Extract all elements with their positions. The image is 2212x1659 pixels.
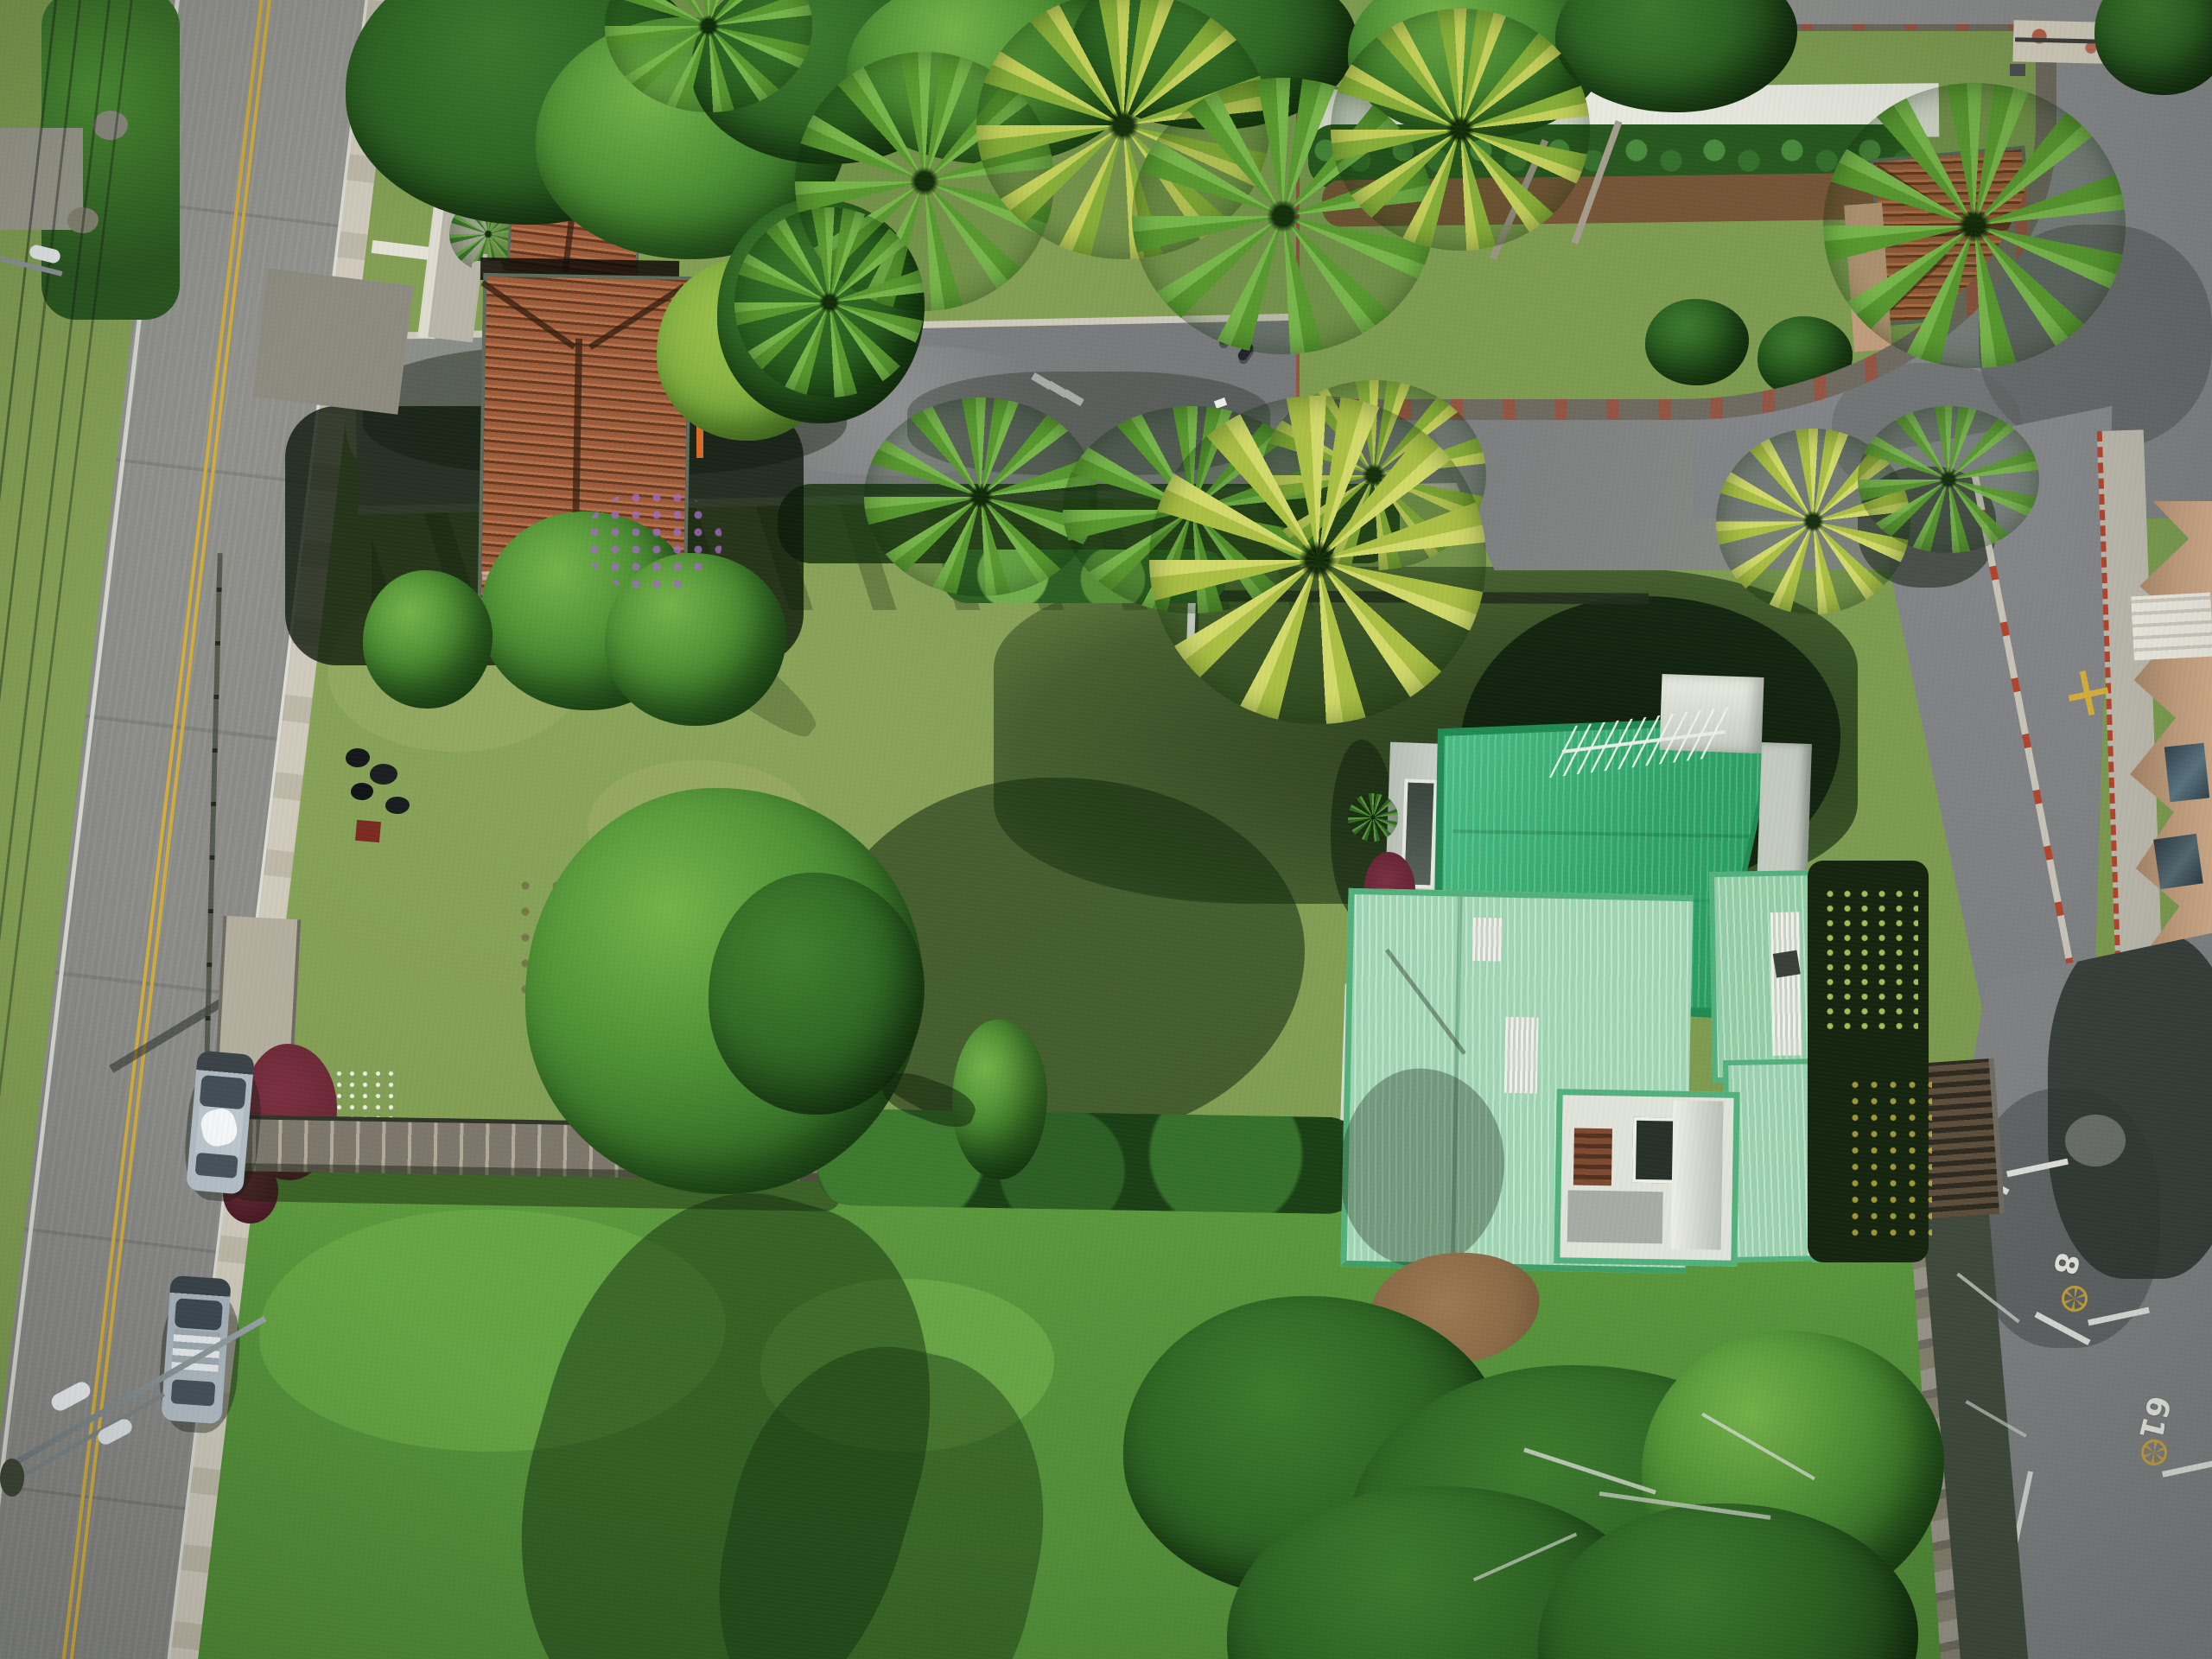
skylight (1504, 1017, 1539, 1094)
tree-shadow-on-roof (1338, 1067, 1506, 1269)
garden-tire (1894, 358, 1920, 382)
streetlight-base (0, 1459, 24, 1497)
stall-emblem (2062, 1286, 2088, 1312)
car-rear-window (171, 1379, 216, 1406)
hip-valley (480, 280, 576, 349)
skylight (1770, 912, 1802, 1056)
garden-bush (1645, 299, 1749, 385)
purple-bloom-speckles (584, 489, 722, 593)
right-wall-white (1757, 742, 1812, 889)
trash-bag (346, 748, 370, 767)
palm-fronds-lane (1858, 406, 2039, 553)
solar-panel (1773, 950, 1801, 978)
pergola-roof (2131, 593, 2212, 661)
sunlit-leaf-speckles (1821, 887, 1918, 1033)
aerial-photo-scene: 8 61 (0, 0, 2212, 1659)
building-glass (2164, 743, 2209, 802)
palm-canopy (1331, 9, 1590, 251)
hedge-band (817, 1109, 1363, 1215)
house-fan-palm (1348, 793, 1398, 842)
verge-rock (93, 111, 128, 140)
entry-courtyard (1554, 1089, 1739, 1267)
stall-T-divider (2162, 1459, 2212, 1478)
entry-steps (1573, 1128, 1612, 1186)
parked-car-2 (161, 1275, 232, 1424)
palm-canopy-over-road (864, 397, 1097, 596)
stall-emblem (2141, 1440, 2167, 1465)
stall-number: 61 (2132, 1392, 2177, 1443)
yellow-palm-backyard (1149, 396, 1486, 724)
car-windshield (175, 1298, 223, 1331)
car-rear-window (195, 1153, 238, 1179)
lawn-bush (363, 570, 493, 709)
trash-bag (385, 797, 410, 814)
palm-over-gatehouse (1823, 83, 2126, 368)
antenna-boom (1562, 730, 1726, 753)
car-windshield (200, 1075, 247, 1109)
utility-box (2010, 64, 2025, 76)
red-shed (355, 820, 381, 842)
stall-number-text: 61 (2132, 1392, 2177, 1443)
tree-shadow-on-parking (2048, 933, 2212, 1279)
sunlit-leaf-speckles (1846, 1077, 1932, 1241)
parked-car-1 (186, 1050, 255, 1194)
trash-bag (370, 764, 397, 785)
light-spot (2065, 1115, 2126, 1166)
palm-canopy (734, 207, 925, 397)
carport-pad (251, 268, 413, 415)
building-glass (2153, 834, 2203, 889)
trash-bag (351, 783, 373, 800)
skylight (1472, 918, 1503, 962)
porch-wall (1671, 1101, 1724, 1250)
garden-bush (1758, 316, 1853, 398)
porch-shadow (1567, 1190, 1663, 1243)
branch-shadow (1385, 949, 1466, 1055)
